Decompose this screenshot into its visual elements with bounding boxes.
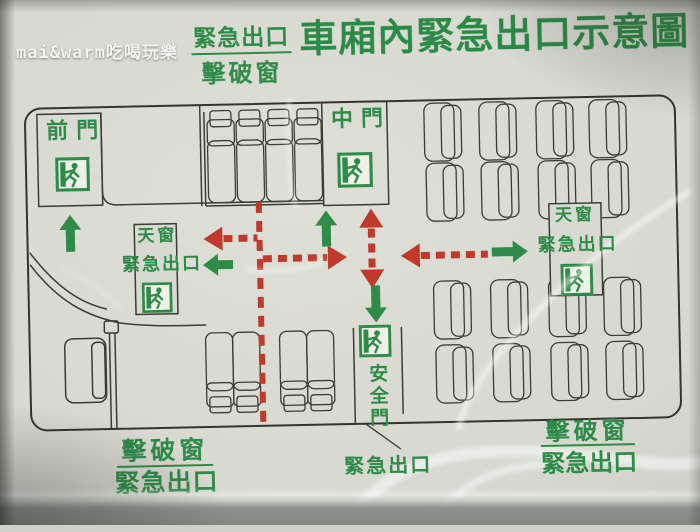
skylight-left-exit-icon bbox=[142, 282, 173, 313]
safety-door-exit-icon bbox=[359, 325, 392, 358]
green-arrow-right-skylight bbox=[492, 240, 528, 263]
sign-title: 車廂內緊急出口示意圖 bbox=[294, 11, 695, 59]
skylight-right-label-bottom: 緊急出口 bbox=[534, 235, 622, 256]
seat-block-lower-right bbox=[433, 277, 644, 403]
front-door-label: 前門 bbox=[38, 119, 100, 143]
bottom-right-emergency-exit-label: 緊急出口 bbox=[538, 449, 641, 476]
skylight-left-label-bottom: 緊急出口 bbox=[118, 255, 206, 276]
front-door-exit-icon bbox=[55, 157, 90, 192]
sign-content: 緊急出口 擊破窗 車廂內緊急出口示意圖 前門 中門 天窗 緊急出口 天窗 緊急出… bbox=[0, 0, 700, 532]
driver-seat bbox=[65, 338, 107, 403]
legend-break-window-label: 擊破窗 bbox=[192, 59, 293, 86]
legend-emergency-exit-label: 緊急出口 bbox=[191, 25, 292, 55]
middle-door-exit-icon bbox=[337, 152, 373, 188]
partition-bar bbox=[109, 333, 116, 428]
green-arrow-left-skylight bbox=[203, 253, 233, 276]
green-arrow-down-safety-door bbox=[364, 285, 387, 322]
skylight-right-label-top: 天窗 bbox=[554, 207, 596, 226]
sign-photo: 緊急出口 擊破窗 車廂內緊急出口示意圖 前門 中門 天窗 緊急出口 天窗 緊急出… bbox=[0, 0, 700, 525]
bottom-left-break-window-label: 擊破窗 bbox=[117, 437, 214, 468]
seat-row-front bbox=[207, 109, 323, 203]
photo-of-bus-emergency-exit-sign: { "watermark": "mai&warm吃喝玩樂", "header":… bbox=[0, 0, 700, 525]
skylight-left-label-top: 天窗 bbox=[136, 228, 178, 247]
green-arrow-up-middle-door bbox=[315, 210, 338, 246]
seat-row-lower-middle bbox=[205, 330, 335, 413]
red-arrow-left-2 bbox=[401, 244, 420, 268]
red-arrow-up bbox=[359, 208, 383, 227]
red-arrow-left-1 bbox=[203, 227, 222, 251]
safety-door-label: 安全門 bbox=[366, 361, 387, 431]
aisle-dashed-line bbox=[259, 202, 264, 426]
red-escape-paths bbox=[203, 197, 492, 427]
red-arrow-right bbox=[328, 245, 347, 269]
middle-door-label: 中門 bbox=[323, 107, 385, 131]
photographer-watermark: mai&warm吃喝玩樂 bbox=[16, 38, 178, 63]
bottom-right-break-window-label: 擊破窗 bbox=[540, 417, 635, 447]
bottom-left-emergency-exit-label: 緊急出口 bbox=[110, 469, 223, 498]
green-arrow-up-front-door bbox=[59, 215, 82, 252]
bottom-center-emergency-exit-label: 緊急出口 bbox=[342, 454, 434, 477]
